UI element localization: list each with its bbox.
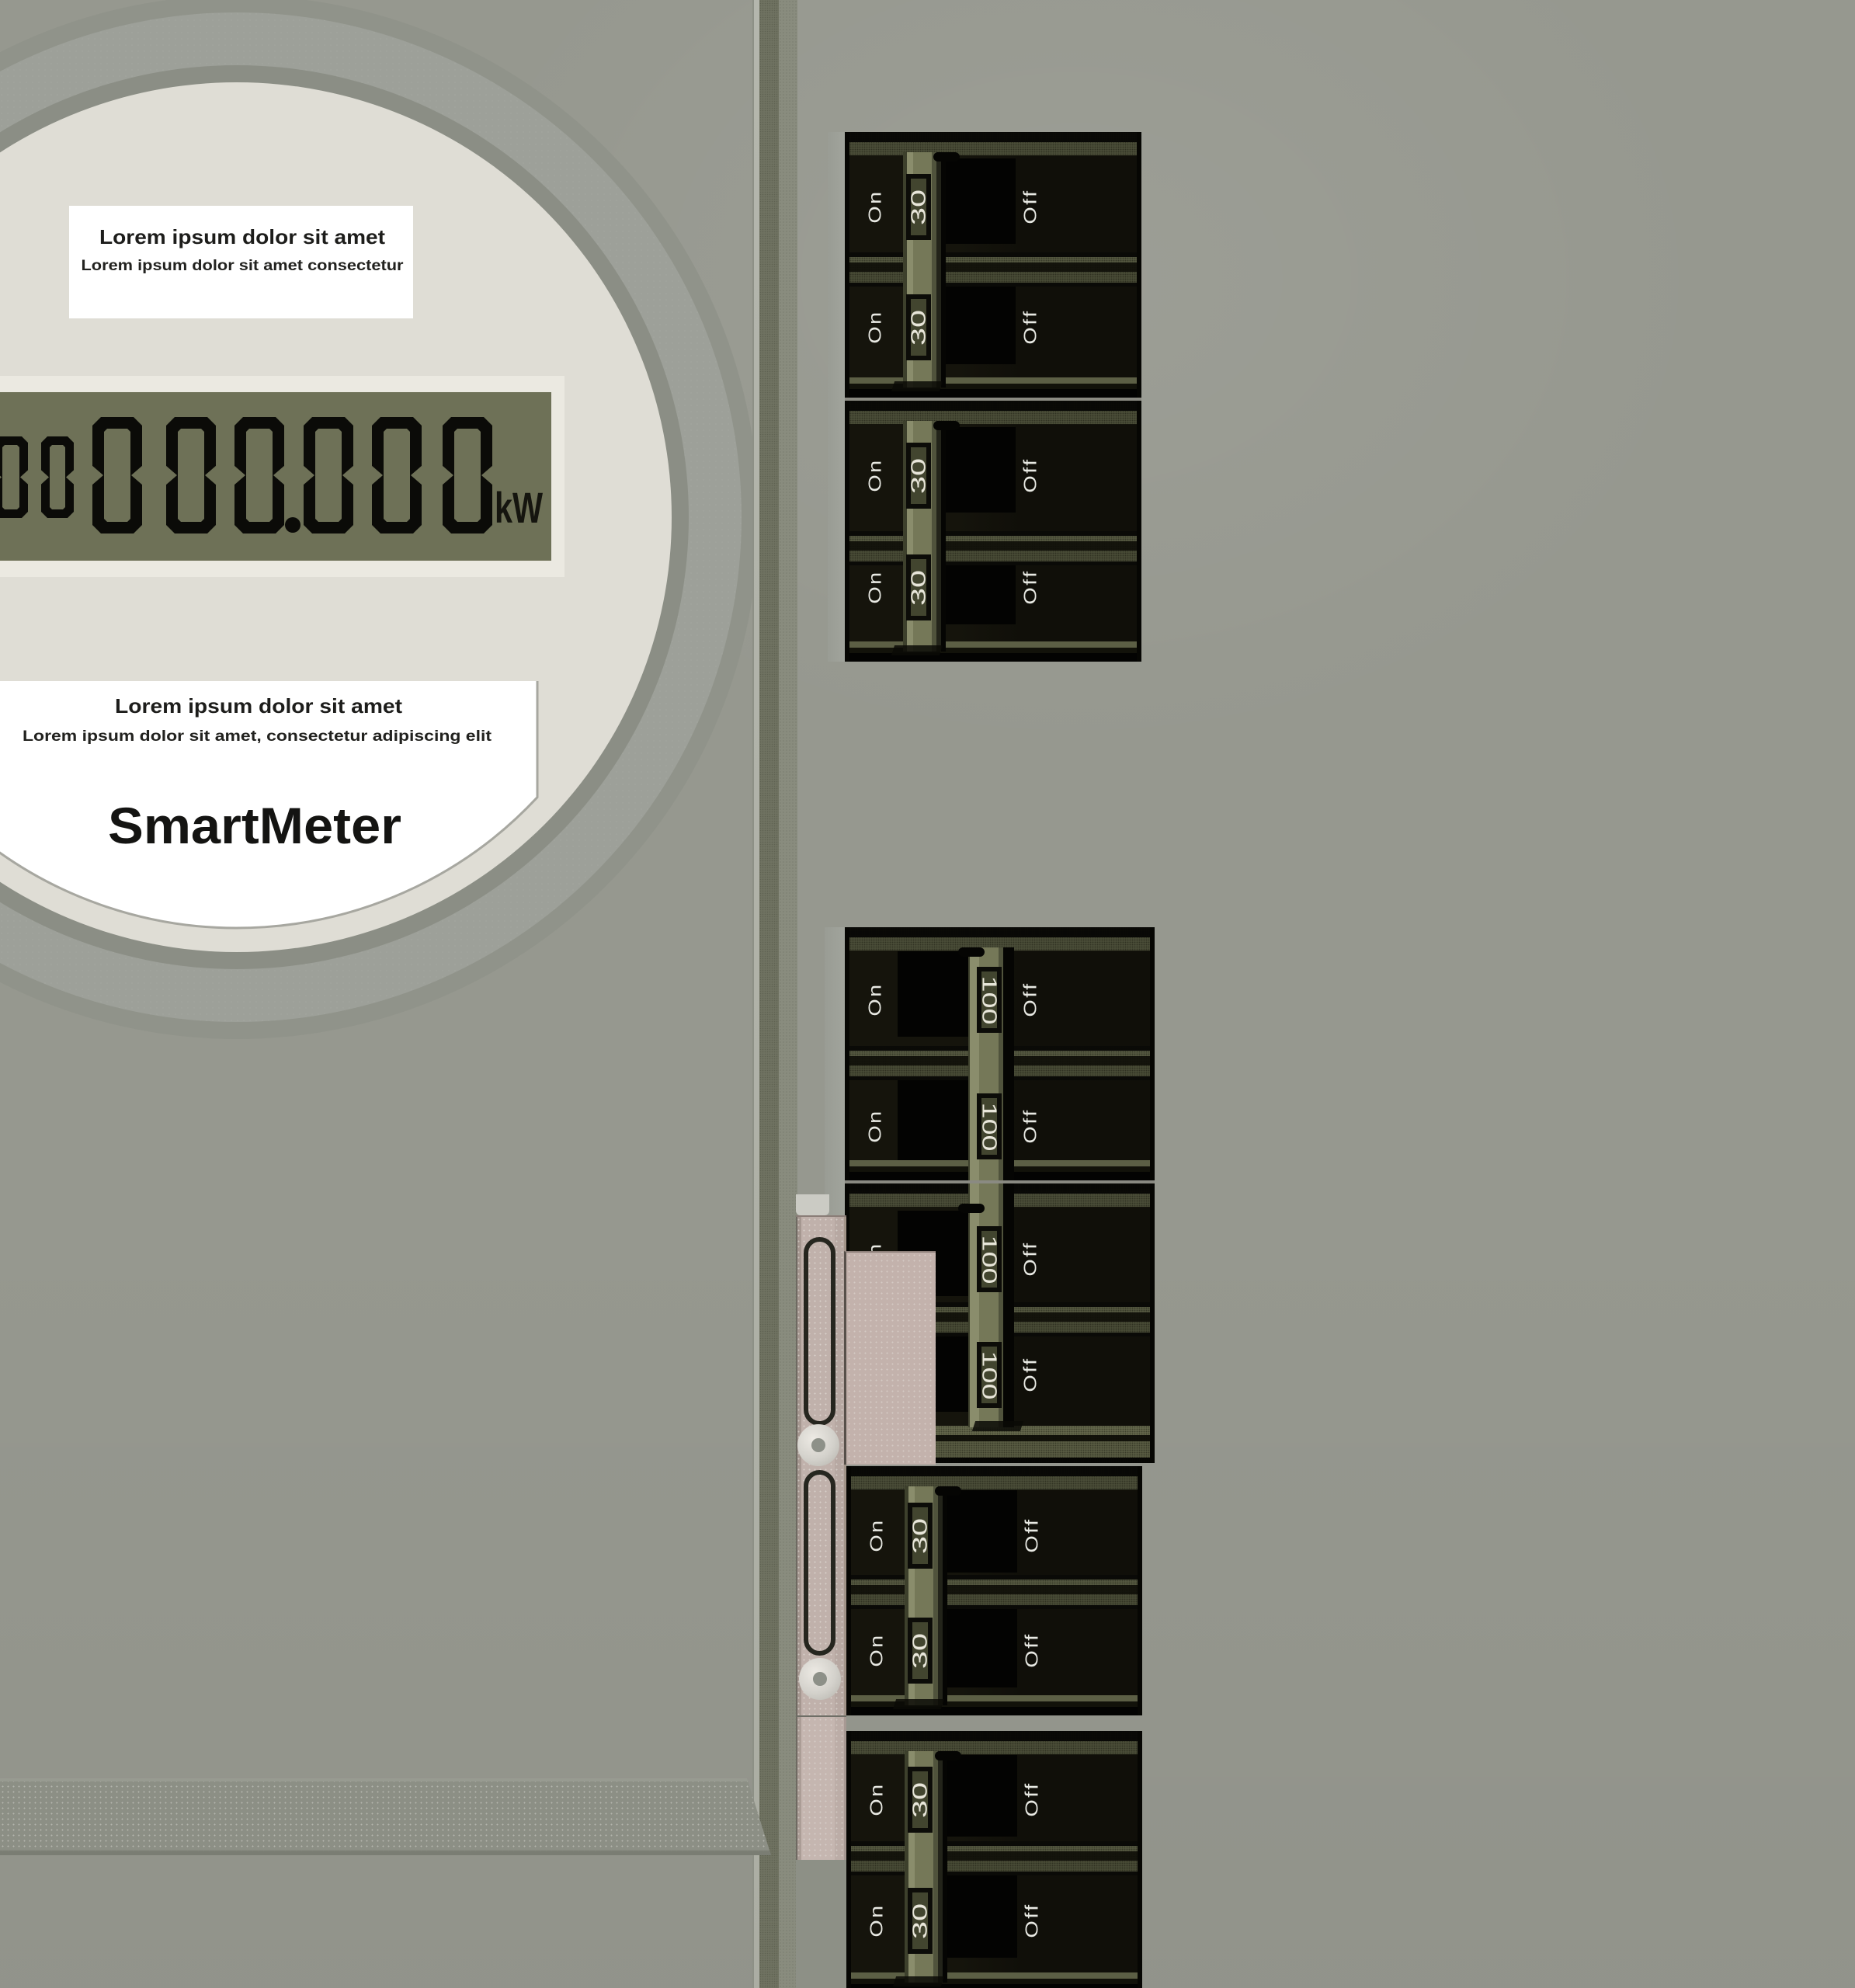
svg-text:Lorem ipsum dolor sit amet: Lorem ipsum dolor sit amet: [99, 225, 385, 248]
svg-text:kW: kW: [495, 483, 543, 532]
svg-text:Lorem ipsum dolor sit amet con: Lorem ipsum dolor sit amet consectetur: [82, 258, 405, 274]
svg-text:Lorem ipsum dolor sit amet, co: Lorem ipsum dolor sit amet, consectetur …: [23, 728, 492, 745]
svg-text:Lorem ipsum dolor sit amet: Lorem ipsum dolor sit amet: [115, 694, 402, 718]
svg-text:SmartMeter: SmartMeter: [108, 797, 401, 854]
